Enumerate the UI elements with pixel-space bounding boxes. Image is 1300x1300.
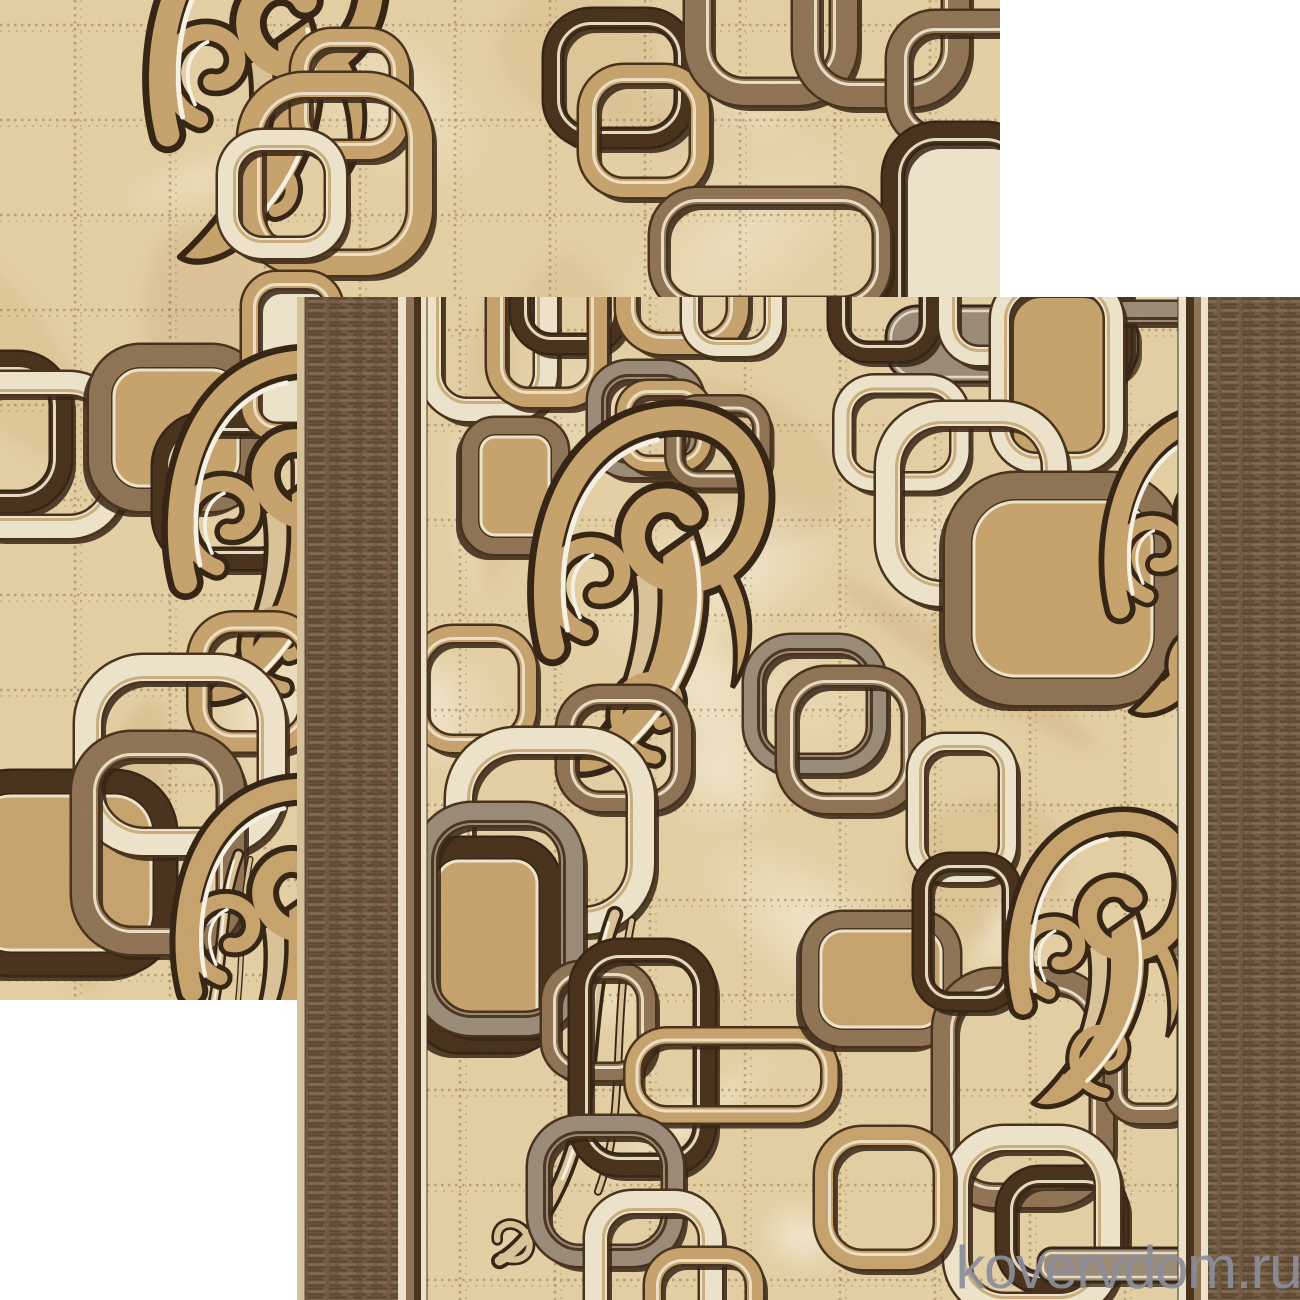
watermark-text: kovervdom.ru xyxy=(956,1234,1300,1300)
carpet-front-crop xyxy=(206,212,1300,1300)
carpet-photo-canvas: kovervdom.ru xyxy=(0,0,1300,1300)
carpet-product-photo: kovervdom.ru xyxy=(0,0,1300,1300)
